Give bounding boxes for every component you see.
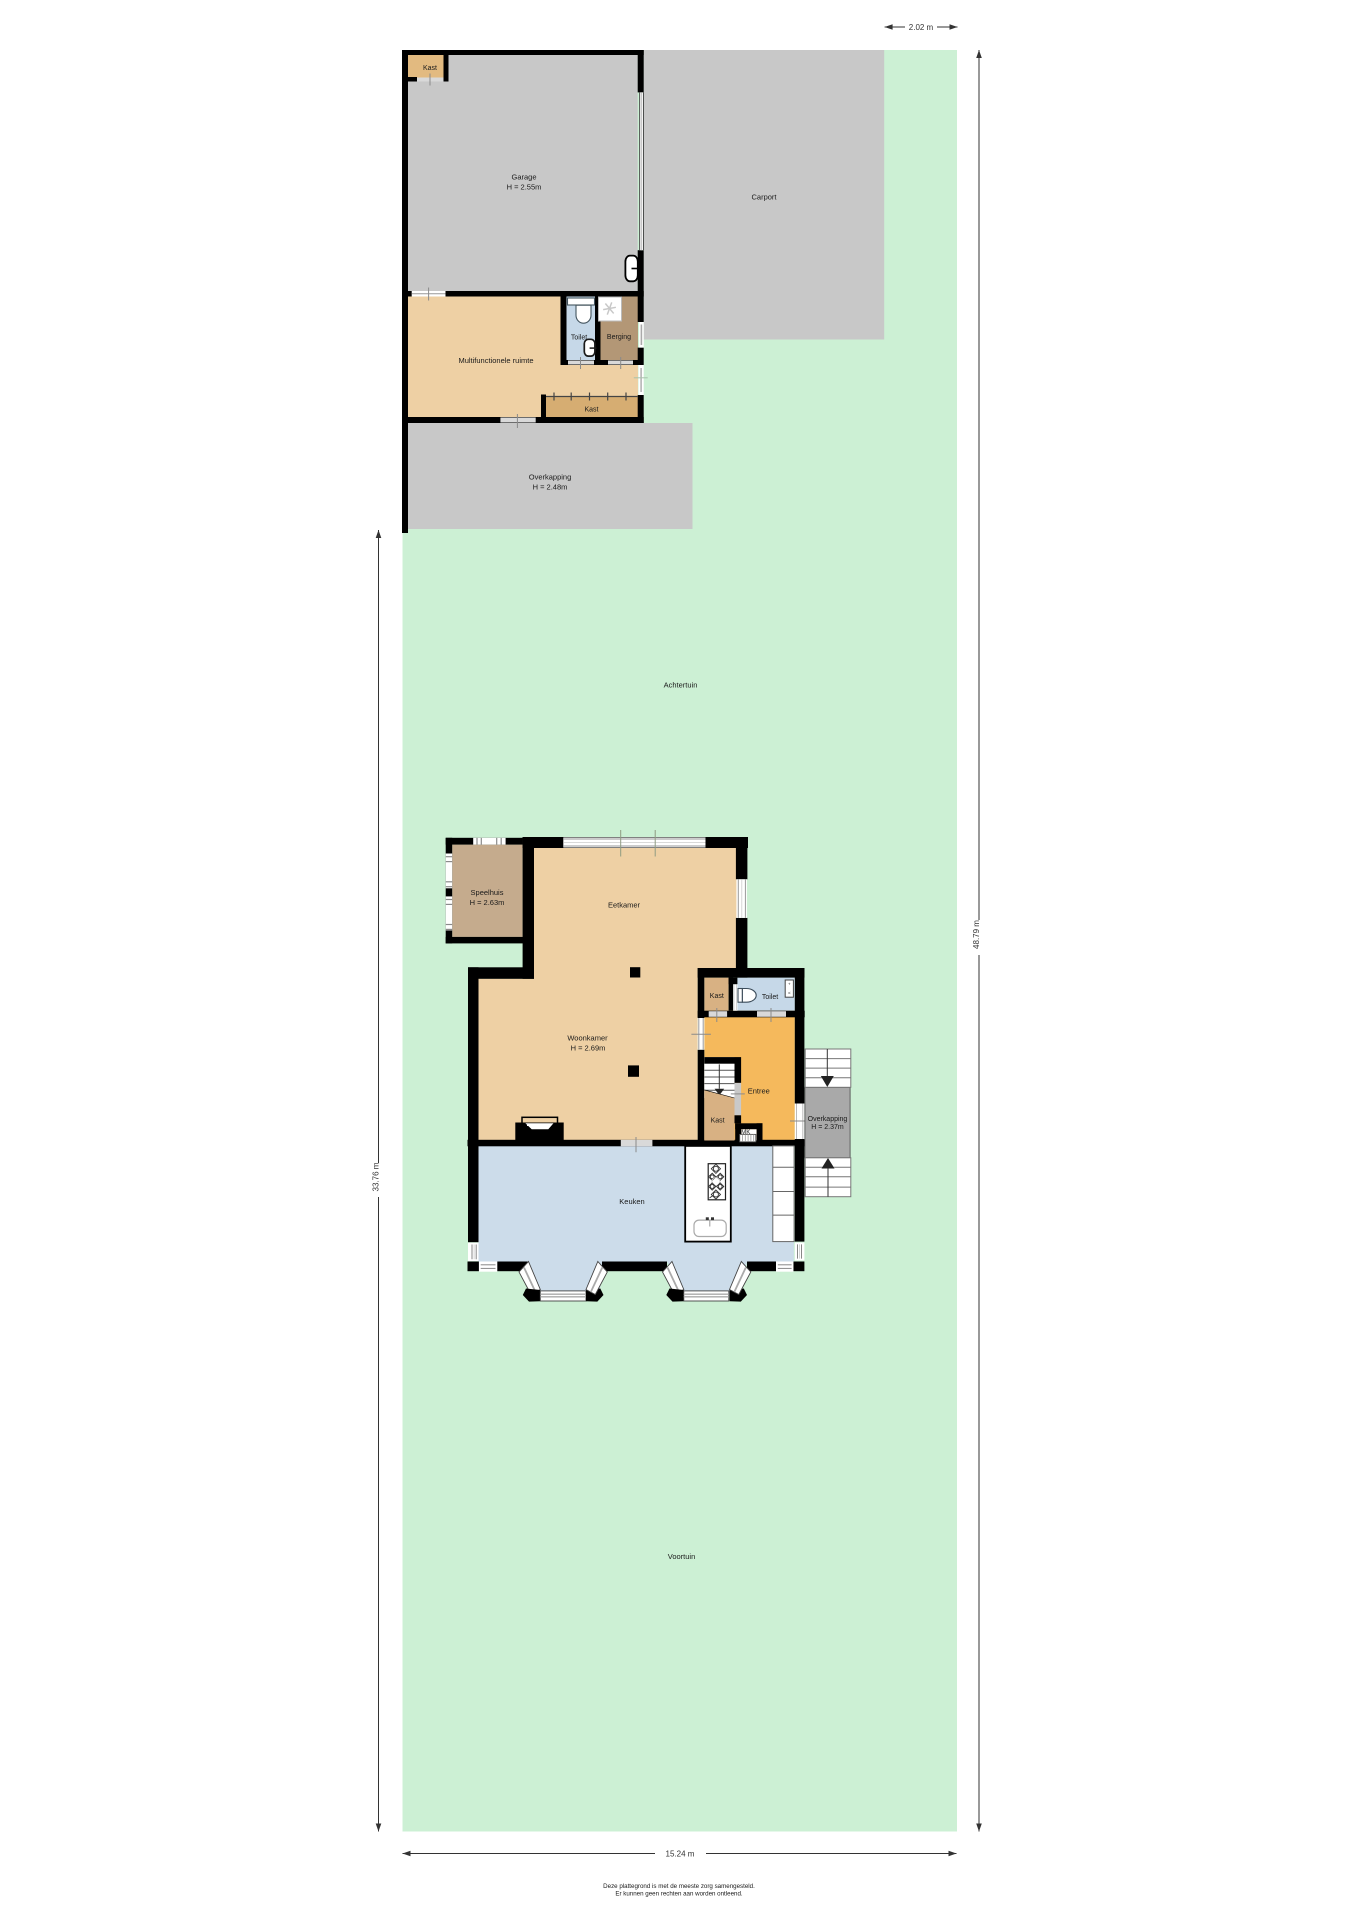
- svg-text:Garage: Garage: [511, 173, 536, 182]
- svg-text:Toilet: Toilet: [762, 994, 778, 1001]
- svg-text:Achtertuin: Achtertuin: [664, 681, 698, 690]
- svg-text:H = 2.37m: H = 2.37m: [811, 1124, 844, 1131]
- svg-text:Kast: Kast: [711, 1117, 725, 1124]
- svg-text:H = 2.48m: H = 2.48m: [533, 483, 568, 492]
- svg-text:Berging: Berging: [607, 334, 631, 341]
- svg-text:Keuken: Keuken: [619, 1197, 644, 1206]
- svg-text:48.79 m: 48.79 m: [972, 920, 981, 949]
- svg-text:33.76 m: 33.76 m: [372, 1162, 381, 1191]
- svg-text:<: <: [788, 991, 791, 996]
- svg-text:Carport: Carport: [751, 193, 777, 202]
- svg-text:Overkapping: Overkapping: [529, 473, 572, 482]
- svg-text:H = 2.55m: H = 2.55m: [507, 183, 542, 192]
- svg-text:Multifunctionele ruimte: Multifunctionele ruimte: [458, 356, 533, 365]
- svg-text:Deze plattegrond is met de mee: Deze plattegrond is met de meeste zorg s…: [603, 1883, 755, 1890]
- svg-text:Overkapping: Overkapping: [808, 1116, 848, 1123]
- svg-text:Entree: Entree: [748, 1087, 770, 1096]
- svg-text:+: +: [788, 982, 791, 987]
- svg-text:Voortuin: Voortuin: [668, 1552, 696, 1561]
- svg-text:Eetkamer: Eetkamer: [608, 901, 641, 910]
- svg-text:Kast: Kast: [710, 993, 724, 1000]
- svg-text:H = 2.69m: H = 2.69m: [571, 1044, 606, 1053]
- svg-text:Kast: Kast: [584, 407, 598, 414]
- svg-text:H = 2.63m: H = 2.63m: [470, 898, 505, 907]
- svg-text:Woonkamer: Woonkamer: [567, 1034, 608, 1043]
- svg-text:15.24 m: 15.24 m: [666, 1850, 695, 1859]
- svg-text:Er kunnen geen rechten aan wor: Er kunnen geen rechten aan worden ontlee…: [615, 1891, 743, 1898]
- svg-text:2.02 m: 2.02 m: [909, 23, 934, 32]
- svg-text:Speelhuis: Speelhuis: [471, 888, 504, 897]
- svg-text:Kast: Kast: [423, 65, 437, 72]
